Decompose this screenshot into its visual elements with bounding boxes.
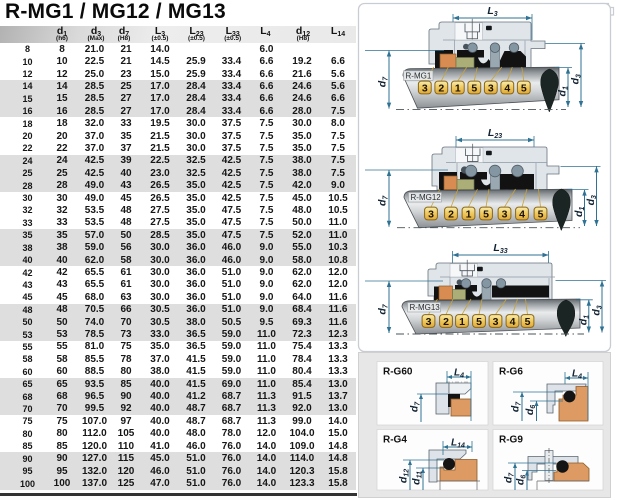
svg-text:2: 2 [443, 316, 449, 328]
svg-text:3: 3 [488, 82, 494, 94]
svg-text:4: 4 [504, 82, 510, 94]
svg-text:4: 4 [510, 316, 516, 328]
svg-text:4: 4 [519, 208, 525, 220]
svg-text:1: 1 [459, 316, 465, 328]
svg-text:3: 3 [493, 316, 499, 328]
svg-text:2: 2 [438, 82, 444, 94]
svg-text:R-MG12: R-MG12 [411, 193, 442, 202]
svg-text:R-MG13: R-MG13 [410, 303, 441, 312]
svg-text:3: 3 [422, 82, 428, 94]
svg-text:3: 3 [428, 208, 434, 220]
svg-text:5: 5 [483, 208, 489, 220]
svg-text:3: 3 [502, 208, 508, 220]
svg-text:5: 5 [476, 316, 482, 328]
svg-text:R-G60: R-G60 [383, 367, 413, 378]
svg-text:3: 3 [426, 316, 432, 328]
svg-text:2: 2 [448, 208, 454, 220]
svg-text:R-G9: R-G9 [499, 435, 523, 446]
svg-text:R-MG1: R-MG1 [406, 71, 432, 80]
svg-text:5: 5 [525, 316, 531, 328]
svg-text:R-G4: R-G4 [383, 435, 407, 446]
svg-text:1: 1 [466, 208, 472, 220]
svg-text:5: 5 [471, 82, 477, 94]
svg-text:1: 1 [455, 82, 461, 94]
svg-text:5: 5 [538, 208, 544, 220]
svg-text:R-G6: R-G6 [499, 367, 523, 378]
svg-text:5: 5 [521, 82, 527, 94]
